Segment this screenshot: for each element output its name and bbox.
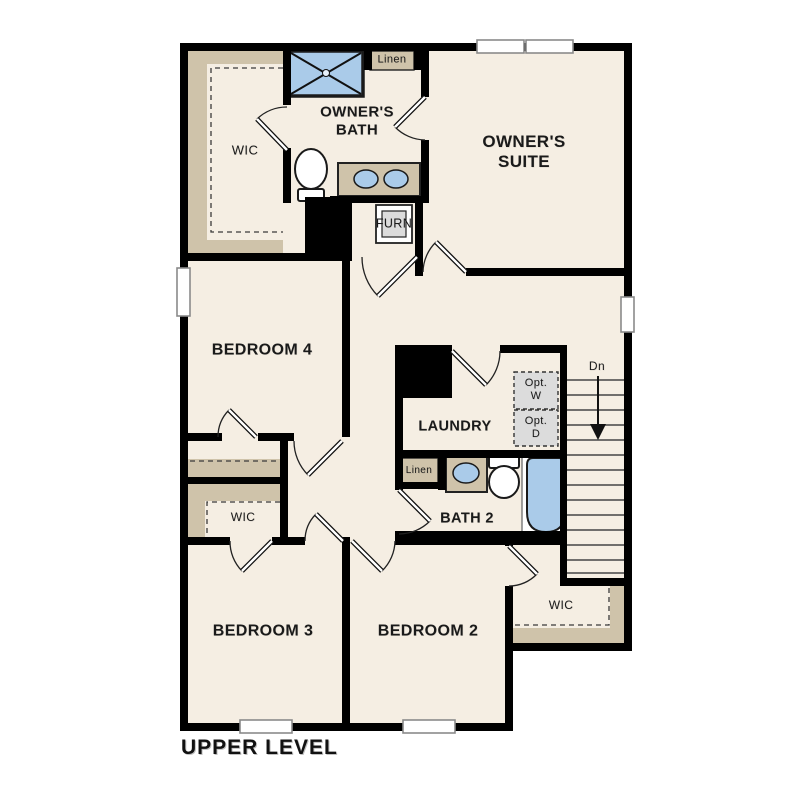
- window: [526, 40, 573, 53]
- room-label-owners-bath: OWNER'S BATH: [320, 103, 394, 138]
- bathtub-fixture: [522, 453, 566, 532]
- label-linen-bath2: Linen: [406, 465, 432, 477]
- window: [403, 720, 455, 733]
- label-furnace: FURN: [376, 217, 412, 232]
- floor-plan: WIC OWNER'S BATH Linen OWNER'S SUITE FUR…: [0, 0, 810, 810]
- owners-bath-vanity-fixture: [338, 163, 420, 196]
- level-title: UPPER LEVEL: [181, 736, 338, 760]
- window: [621, 297, 634, 332]
- shower-fixture: [289, 51, 363, 96]
- label-optional-washer: Opt. W: [525, 377, 547, 403]
- floor-plan-drawing: [0, 0, 810, 810]
- room-label-owners-wic: WIC: [232, 142, 258, 157]
- room-label-bedroom3: BEDROOM 3: [213, 623, 314, 642]
- label-linen-upper: Linen: [378, 54, 407, 67]
- window: [477, 40, 524, 53]
- room-label-bedroom2: BEDROOM 2: [378, 623, 479, 642]
- room-label-laundry: LAUNDRY: [418, 418, 491, 435]
- label-stairs-down: Dn: [589, 359, 605, 373]
- owners-bath-toilet-fixture: [295, 149, 327, 201]
- window: [177, 268, 190, 316]
- room-label-bedroom2-wic: WIC: [549, 598, 574, 612]
- label-optional-dryer: Opt. D: [525, 415, 547, 441]
- room-label-owners-suite: OWNER'S SUITE: [482, 132, 565, 172]
- room-label-bedroom4: BEDROOM 4: [212, 342, 313, 361]
- room-label-bedroom3-wic: WIC: [231, 510, 256, 524]
- room-label-bath2: BATH 2: [440, 510, 494, 527]
- bath2-toilet-fixture: [489, 454, 519, 498]
- window: [240, 720, 292, 733]
- bath2-vanity-fixture: [446, 455, 487, 492]
